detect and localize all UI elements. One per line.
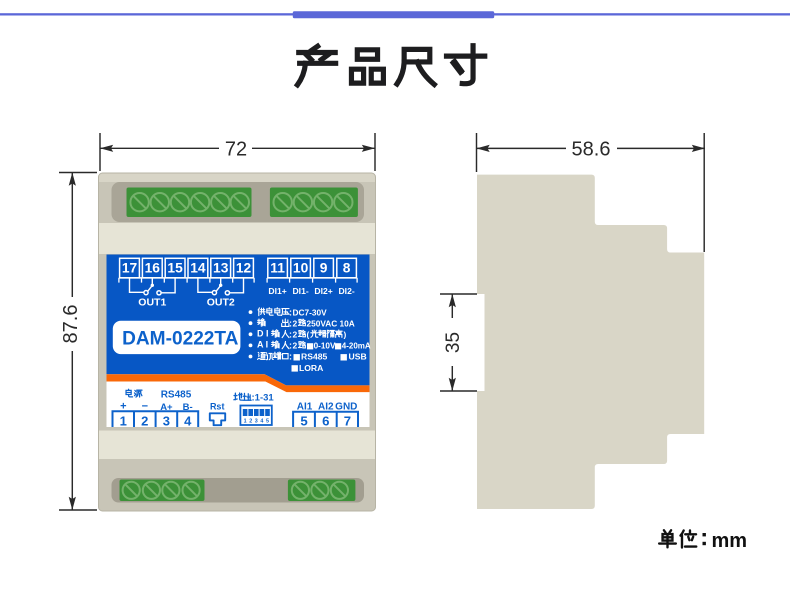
svg-text:DAM-0222TA: DAM-0222TA — [122, 328, 239, 349]
svg-text:2: 2 — [293, 318, 298, 328]
svg-text:250VAC 10A: 250VAC 10A — [307, 318, 355, 328]
svg-text:16: 16 — [145, 261, 161, 276]
svg-text:8: 8 — [343, 261, 351, 276]
svg-text:D I: D I — [257, 329, 269, 339]
svg-text::: : — [289, 352, 292, 362]
svg-text:1: 1 — [244, 419, 247, 425]
svg-text:mm: mm — [712, 530, 748, 552]
svg-text:14: 14 — [190, 261, 206, 276]
svg-text:3: 3 — [163, 413, 170, 428]
svg-text:4-20mA: 4-20mA — [342, 342, 371, 351]
svg-text:DI1+: DI1+ — [268, 286, 286, 296]
svg-text:A I: A I — [257, 340, 268, 350]
svg-text:Rst: Rst — [210, 402, 225, 412]
svg-text:35: 35 — [443, 332, 464, 353]
svg-text:RS485: RS485 — [161, 389, 192, 400]
svg-text:5: 5 — [266, 419, 269, 425]
svg-text::1-31: :1-31 — [252, 392, 275, 403]
svg-text:2: 2 — [141, 413, 148, 428]
svg-text:DC7-30V: DC7-30V — [293, 307, 328, 317]
svg-text:15: 15 — [167, 261, 183, 276]
svg-text:5: 5 — [300, 413, 307, 428]
svg-text:6: 6 — [322, 413, 329, 428]
svg-text:1: 1 — [120, 413, 127, 428]
svg-text:58.6: 58.6 — [572, 138, 611, 160]
svg-text:4: 4 — [260, 419, 263, 425]
svg-text:): ) — [344, 330, 347, 340]
svg-text:RS485: RS485 — [301, 352, 327, 362]
svg-text:0-10V: 0-10V — [314, 342, 336, 351]
svg-text:DI1-: DI1- — [292, 286, 308, 296]
svg-text:(: ( — [307, 330, 310, 340]
svg-text:10: 10 — [293, 261, 309, 276]
svg-text:USB: USB — [349, 352, 367, 362]
svg-text:4: 4 — [184, 413, 192, 428]
svg-text:DI2+: DI2+ — [314, 286, 332, 296]
svg-text:DI2-: DI2- — [338, 286, 354, 296]
svg-text:7: 7 — [344, 413, 351, 428]
svg-text:72: 72 — [225, 138, 247, 160]
svg-text:2: 2 — [249, 419, 252, 425]
svg-text:LORA: LORA — [299, 363, 323, 373]
svg-text:2: 2 — [293, 330, 298, 340]
svg-text:17: 17 — [122, 261, 138, 276]
svg-text:3: 3 — [255, 419, 258, 425]
svg-text:13: 13 — [213, 261, 229, 276]
svg-text:9: 9 — [320, 261, 328, 276]
svg-text:OUT1: OUT1 — [138, 297, 166, 309]
svg-text:87.6: 87.6 — [60, 305, 82, 344]
svg-text:12: 12 — [236, 261, 252, 276]
svg-text:11: 11 — [270, 261, 285, 276]
svg-text:OUT2: OUT2 — [207, 297, 235, 309]
svg-text:2: 2 — [293, 341, 298, 351]
